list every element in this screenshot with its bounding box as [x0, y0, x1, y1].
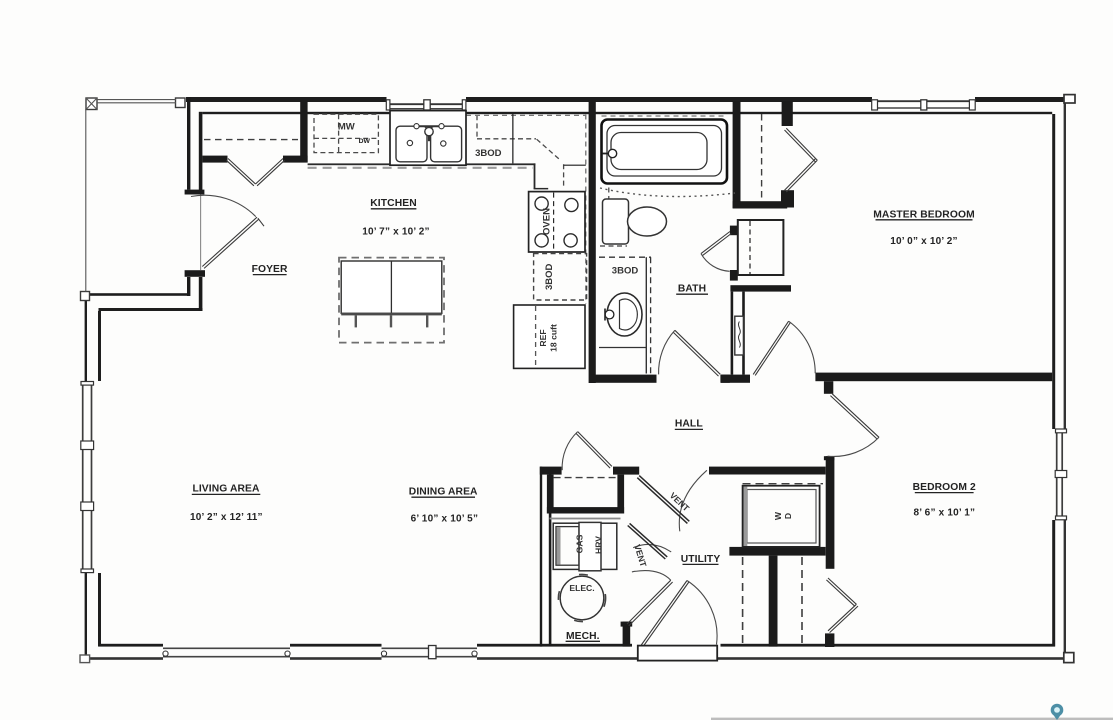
svg-text:10’ 7” x 10’ 2”: 10’ 7” x 10’ 2”	[362, 227, 430, 238]
svg-text:BEDROOM 2: BEDROOM 2	[913, 482, 976, 493]
svg-text:GAS: GAS	[575, 534, 585, 553]
svg-text:LIVING AREA: LIVING AREA	[192, 484, 260, 495]
svg-text:VENT: VENT	[668, 490, 692, 513]
svg-text:VENT: VENT	[632, 543, 648, 569]
svg-text:MECH.: MECH.	[566, 631, 600, 642]
svg-text:REF: REF	[538, 329, 548, 346]
svg-text:10’ 2” x 12’ 11”: 10’ 2” x 12’ 11”	[190, 512, 263, 523]
svg-text:8’ 6” x 10’ 1”: 8’ 6” x 10’ 1”	[914, 507, 976, 518]
svg-text:HALL: HALL	[675, 419, 703, 430]
svg-text:ELEC.: ELEC.	[569, 583, 594, 593]
svg-text:DINING AREA: DINING AREA	[409, 487, 478, 498]
svg-text:KITCHEN: KITCHEN	[370, 198, 416, 209]
svg-text:D: D	[783, 513, 793, 519]
svg-text:FOYER: FOYER	[252, 264, 288, 275]
svg-text:DW: DW	[359, 138, 371, 145]
svg-text:W: W	[773, 511, 783, 520]
svg-text:UTILITY: UTILITY	[681, 554, 721, 565]
svg-text:6’ 10” x 10’ 5”: 6’ 10” x 10’ 5”	[411, 513, 479, 524]
svg-text:3BOD: 3BOD	[612, 265, 639, 276]
svg-text:3BOD: 3BOD	[475, 148, 502, 159]
svg-text:3BOD: 3BOD	[544, 263, 555, 290]
svg-text:18 cuft: 18 cuft	[549, 324, 559, 352]
svg-text:HRV: HRV	[594, 536, 604, 554]
svg-text:BATH: BATH	[678, 284, 706, 295]
svg-text:OVEN: OVEN	[542, 208, 553, 235]
svg-text:10’ 0” x 10’ 2”: 10’ 0” x 10’ 2”	[890, 236, 958, 247]
svg-text:MASTER BEDROOM: MASTER BEDROOM	[873, 209, 975, 220]
svg-text:MW: MW	[338, 122, 355, 133]
